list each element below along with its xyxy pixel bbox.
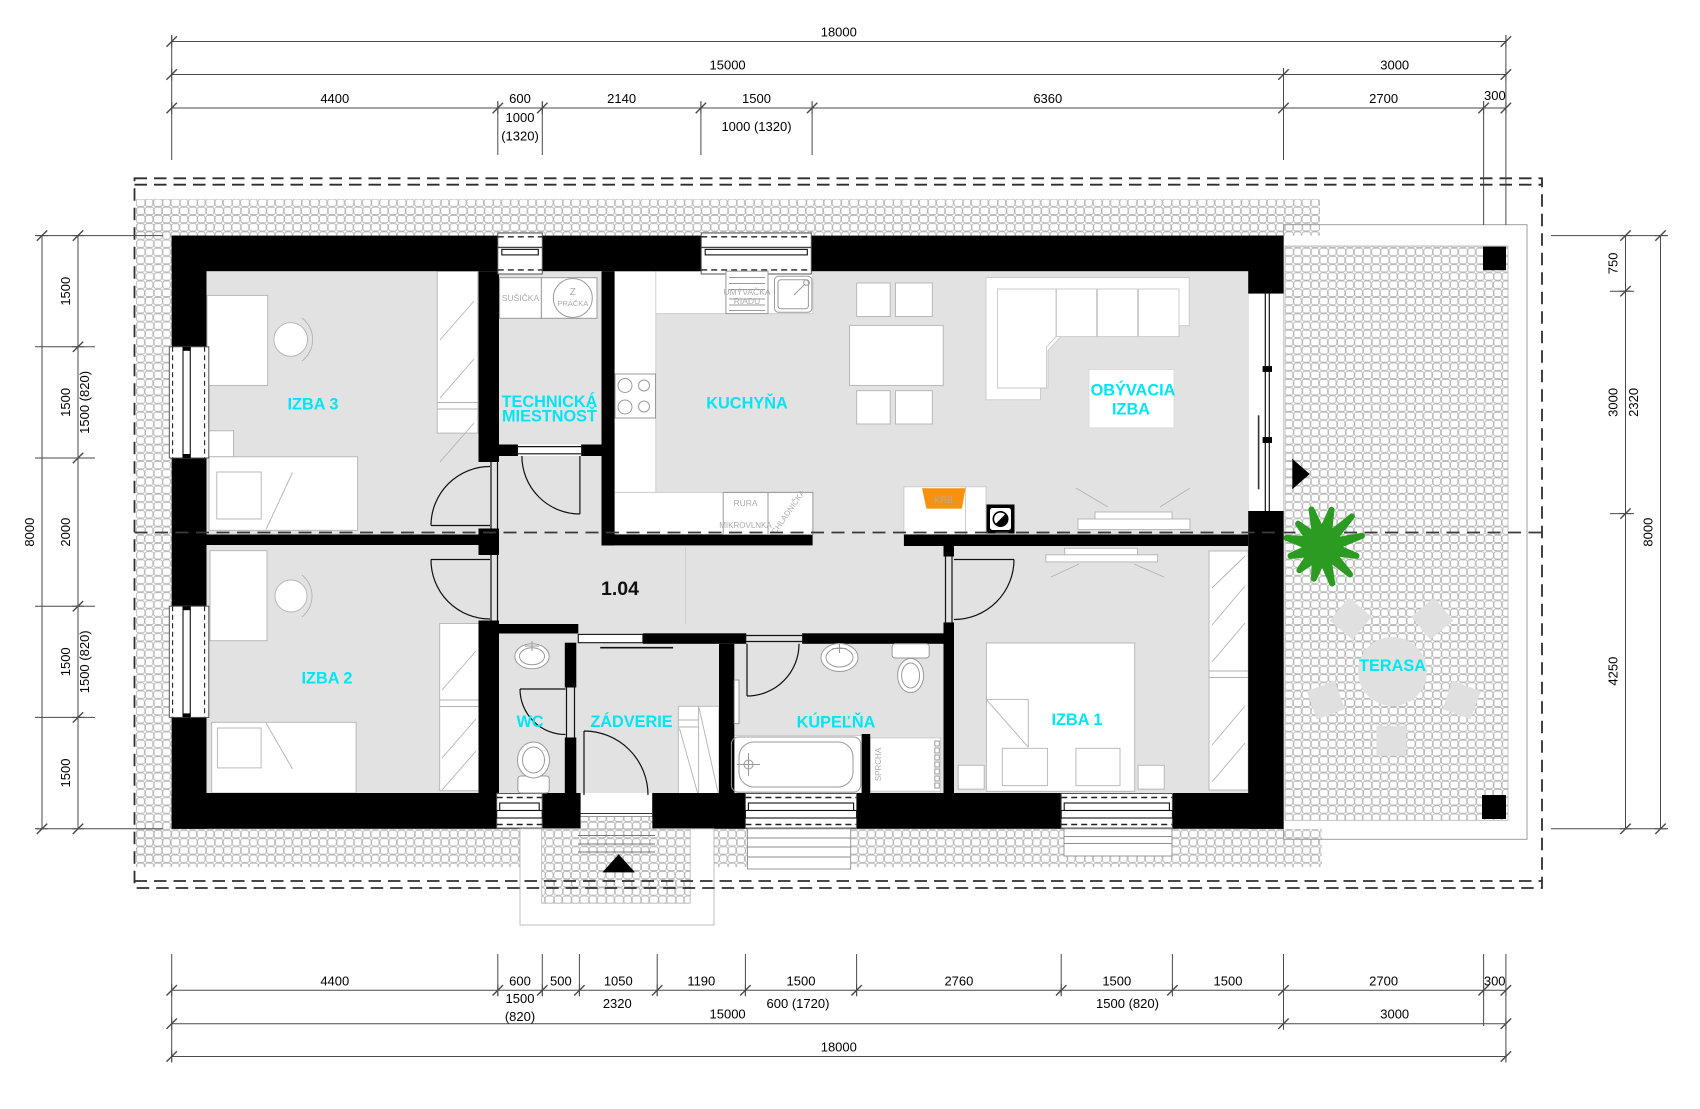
svg-text:IZBA 3: IZBA 3 <box>288 396 339 414</box>
svg-text:1000 (1320): 1000 (1320) <box>721 119 791 134</box>
svg-text:1500: 1500 <box>58 388 73 417</box>
svg-text:2700: 2700 <box>1369 973 1398 988</box>
svg-text:OBÝVACIA: OBÝVACIA <box>1091 381 1176 400</box>
svg-text:2000: 2000 <box>58 518 73 547</box>
svg-text:MIESTNOSŤ: MIESTNOSŤ <box>502 407 597 426</box>
svg-text:1000: 1000 <box>506 110 535 125</box>
svg-text:1500: 1500 <box>742 91 771 106</box>
svg-text:1500: 1500 <box>58 277 73 306</box>
svg-text:2760: 2760 <box>944 973 973 988</box>
svg-text:PRÁČKA: PRÁČKA <box>557 299 588 308</box>
svg-text:8000: 8000 <box>22 518 37 547</box>
svg-text:SPRCHA: SPRCHA <box>874 747 883 781</box>
svg-text:RIADU: RIADU <box>734 296 760 306</box>
svg-text:WC: WC <box>516 713 543 731</box>
svg-text:4400: 4400 <box>320 91 349 106</box>
svg-text:600 (1720): 600 (1720) <box>767 996 830 1011</box>
svg-text:1500 (820): 1500 (820) <box>77 371 92 434</box>
svg-text:1500 (820): 1500 (820) <box>1096 996 1159 1011</box>
svg-text:2320: 2320 <box>1626 388 1641 417</box>
svg-text:2320: 2320 <box>603 996 632 1011</box>
svg-text:750: 750 <box>1606 253 1621 275</box>
svg-text:4400: 4400 <box>320 973 349 988</box>
svg-text:3000: 3000 <box>1380 58 1409 73</box>
svg-text:600: 600 <box>509 91 531 106</box>
svg-text:15000: 15000 <box>710 1007 746 1022</box>
svg-text:18000: 18000 <box>821 1040 857 1055</box>
svg-text:1050: 1050 <box>604 973 633 988</box>
svg-text:1500: 1500 <box>58 647 73 676</box>
svg-text:15000: 15000 <box>710 58 746 73</box>
svg-text:500: 500 <box>550 973 572 988</box>
svg-text:300: 300 <box>1484 88 1506 103</box>
svg-text:1500: 1500 <box>58 759 73 788</box>
svg-text:600: 600 <box>509 973 531 988</box>
svg-text:1500 (820): 1500 (820) <box>77 630 92 693</box>
svg-text:1500: 1500 <box>506 991 535 1006</box>
svg-text:8000: 8000 <box>1641 518 1656 547</box>
svg-text:IZBA: IZBA <box>1112 401 1150 419</box>
svg-text:4250: 4250 <box>1606 657 1621 686</box>
svg-text:1190: 1190 <box>687 973 715 988</box>
svg-text:2140: 2140 <box>607 91 636 106</box>
svg-text:300: 300 <box>1484 973 1506 988</box>
svg-text:(820): (820) <box>505 1009 535 1024</box>
svg-text:SUŠIČKA: SUŠIČKA <box>502 293 540 303</box>
svg-text:3000: 3000 <box>1606 388 1621 417</box>
svg-text:1500: 1500 <box>1214 973 1243 988</box>
svg-text:1500: 1500 <box>787 973 816 988</box>
svg-text:IZBA 2: IZBA 2 <box>302 670 353 688</box>
svg-text:1.04: 1.04 <box>601 578 639 600</box>
svg-text:1500: 1500 <box>1102 973 1131 988</box>
svg-text:6360: 6360 <box>1033 91 1062 106</box>
svg-text:MIKROVLNKA: MIKROVLNKA <box>719 521 772 530</box>
svg-text:IZBA 1: IZBA 1 <box>1052 711 1103 729</box>
svg-text:(1320): (1320) <box>501 129 539 144</box>
svg-text:KÚPEĽŇA: KÚPEĽŇA <box>797 713 876 732</box>
svg-text:TERASA: TERASA <box>1359 657 1426 675</box>
svg-text:Z: Z <box>570 287 576 298</box>
svg-text:18000: 18000 <box>821 25 857 40</box>
svg-text:KRB: KRB <box>934 495 953 505</box>
svg-text:KUCHYŇA: KUCHYŇA <box>706 394 788 413</box>
svg-text:RÚRA: RÚRA <box>733 498 757 508</box>
svg-text:ZÁDVERIE: ZÁDVERIE <box>590 712 672 731</box>
svg-text:3000: 3000 <box>1380 1007 1409 1022</box>
svg-text:2700: 2700 <box>1369 91 1398 106</box>
